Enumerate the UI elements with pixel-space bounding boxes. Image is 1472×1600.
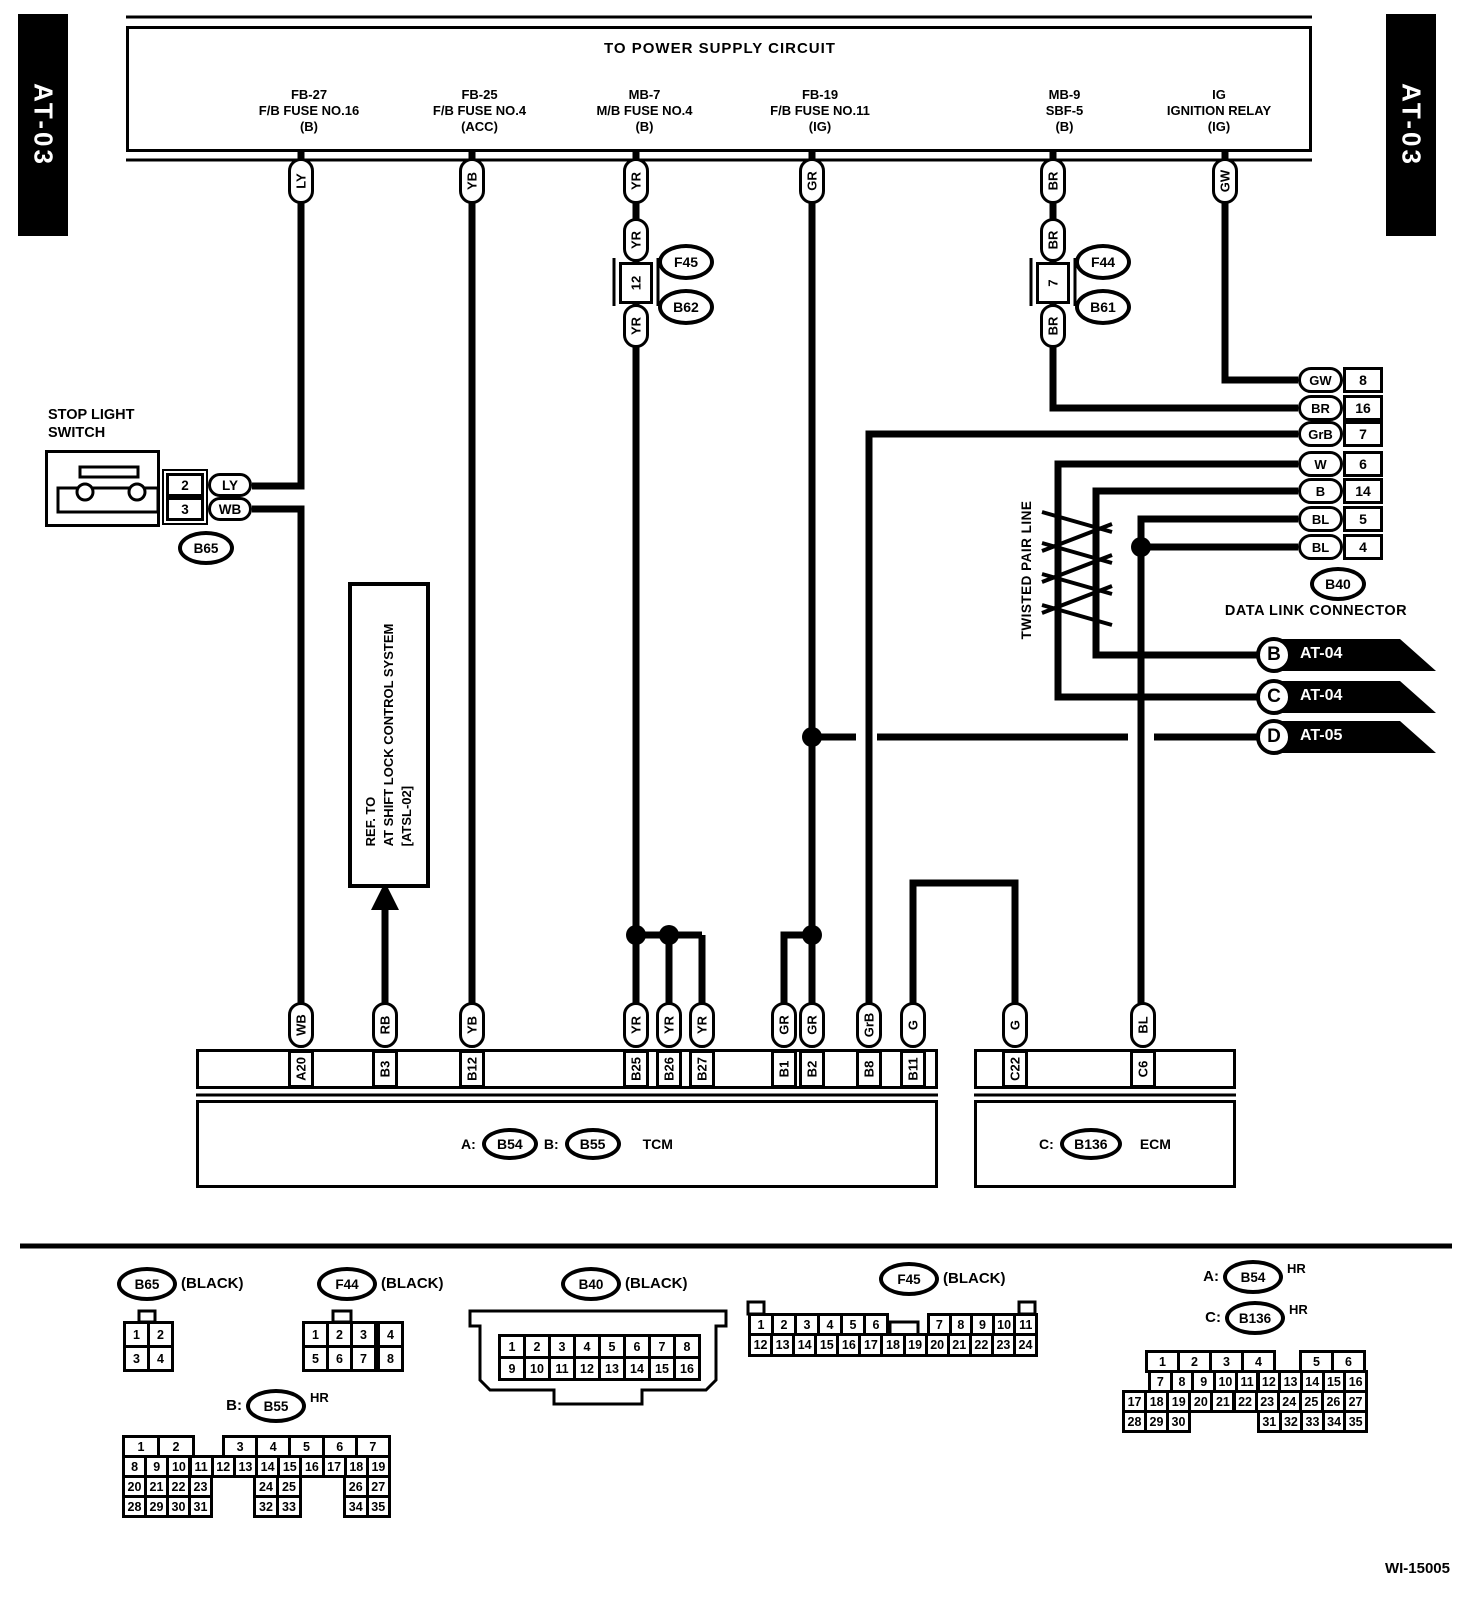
tcm-wire-color-b12: YB	[459, 1002, 485, 1048]
ecm-c-prefix: C:	[1039, 1136, 1054, 1152]
fuse-cell-line3: (B)	[300, 119, 318, 135]
pinout-grid-b65-pin-1: 1	[123, 1321, 150, 1348]
shift-lock-ref-box: REF. TO AT SHIFT LOCK CONTROL SYSTEM [AT…	[348, 582, 430, 888]
tcm-connector-a: B54	[482, 1128, 538, 1160]
tcm-pin-c22: C22	[1002, 1050, 1028, 1088]
ecm-body: C: B136 ECM	[974, 1100, 1236, 1188]
dlc-caption: DATA LINK CONNECTOR	[1204, 603, 1428, 619]
inline-connector-pin-box-label: 7	[1046, 279, 1061, 286]
fuse-cell-fb-27: FB-27F/B FUSE NO.16(B)	[220, 76, 398, 146]
twisted-pair-icon	[1042, 512, 1112, 625]
fuse-cell-line3: (IG)	[1208, 119, 1230, 135]
pinout-tag-b65: (BLACK)	[181, 1275, 251, 1293]
pinout-grid-b40-pin-9: 9	[498, 1356, 526, 1381]
inline-wire-label: BR	[1040, 218, 1066, 262]
wire-color-label-top-gw-label: GW	[1218, 170, 1233, 192]
dlc-wire-color-br: BR	[1298, 395, 1343, 421]
tcm-wire-color-c6-label: BL	[1136, 1016, 1151, 1033]
pinout-grid-b55-pin-35: 35	[366, 1495, 392, 1518]
wiring-diagram-page: AT-03 AT-03 TO POWER SUPPLY CIRCUIT STOP…	[0, 0, 1472, 1600]
inline-connector-pin-box: 12	[619, 262, 653, 304]
figure-number: WI-15005	[1330, 1560, 1450, 1577]
pinout-grid-b40-pin-14: 14	[623, 1356, 651, 1381]
fuse-cell-ig: IGIGNITION RELAY(IG)	[1135, 76, 1303, 146]
pinout-grid-b40-pin-12: 12	[573, 1356, 601, 1381]
pinout-grid-f44-pin-6: 6	[326, 1345, 353, 1372]
tcm-pin-b8-label: B8	[862, 1061, 877, 1078]
tcm-pin-a20: A20	[288, 1050, 314, 1088]
wire-color-label-top-br-label: BR	[1046, 172, 1061, 191]
flag-letter-b: B	[1256, 637, 1292, 673]
tcm-wire-color-b27: YR	[689, 1002, 715, 1048]
pinout-grid-b40-pin-15: 15	[648, 1356, 676, 1381]
tcm-wire-color-b3-label: RB	[378, 1016, 393, 1035]
dlc-pin-number: 14	[1343, 478, 1383, 504]
tcm-connector-b: B55	[565, 1128, 621, 1160]
pinout-prefix-b55: B:	[214, 1397, 242, 1415]
tcm-pin-b27-label: B27	[695, 1057, 710, 1081]
fuse-cell-fb-19: FB-19F/B FUSE NO.11(IG)	[728, 76, 912, 146]
fuse-cell-fb-25: FB-25F/B FUSE NO.4(ACC)	[398, 76, 561, 146]
pinout-grid-b40-pin-10: 10	[523, 1356, 551, 1381]
flag-label-b: AT-04	[1300, 645, 1380, 665]
pinout-prefix-b54: A:	[1191, 1268, 1219, 1286]
tcm-wire-color-a20-label: WB	[294, 1014, 309, 1036]
wire-color-label-top-gr: GR	[799, 158, 825, 204]
tcm-body: A: B54 B: B55 TCM	[196, 1100, 938, 1188]
flag-letter-c: C	[1256, 679, 1292, 715]
tcm-wire-color-b25: YR	[623, 1002, 649, 1048]
dlc-wire-color-bl: BL	[1298, 506, 1343, 532]
flag-letter-d: D	[1256, 719, 1292, 755]
pinout-connector-b40: B40	[561, 1267, 621, 1301]
twisted-pair-label-wrap: TWISTED PAIR LINE	[1012, 480, 1042, 660]
pinout-connector-b55: B55	[246, 1389, 306, 1423]
tcm-wire-color-b26: YR	[656, 1002, 682, 1048]
tcm-wire-color-b27-label: YR	[695, 1016, 710, 1034]
dlc-pin-number: 5	[1343, 506, 1383, 532]
wire-color-label-top-gr-label: GR	[805, 171, 820, 191]
ecm-label-row: C: B136 ECM	[977, 1103, 1233, 1185]
tcm-wire-color-b11-label: G	[906, 1020, 921, 1030]
tcm-pin-c22-label: C22	[1008, 1057, 1023, 1081]
dlc-wire-color-w: W	[1298, 451, 1343, 477]
tcm-wire-color-b8-label: GrB	[862, 1013, 877, 1038]
power-supply-title: TO POWER SUPPLY CIRCUIT	[128, 40, 1312, 57]
dlc-wire-color-bl: BL	[1298, 534, 1343, 560]
inline-wire-label-label: YR	[629, 231, 644, 249]
fuse-cell-line2: SBF-5	[1046, 103, 1084, 119]
pinout-grid-b54-pin-35: 35	[1343, 1410, 1368, 1433]
pinout-connector-b54: B54	[1223, 1260, 1283, 1294]
flag-label-c: AT-04	[1300, 687, 1380, 707]
fuse-cell-line2: F/B FUSE NO.4	[433, 103, 526, 119]
inline-wire-label-label: BR	[1046, 231, 1061, 250]
tcm-pin-b2: B2	[799, 1050, 825, 1088]
tcm-wire-color-b26-label: YR	[662, 1016, 677, 1034]
pinout-connector-b136: B136	[1225, 1301, 1285, 1335]
wire-color-label-top-ly-label: LY	[294, 173, 309, 188]
pinout-grid-b55-pin-33: 33	[276, 1495, 302, 1518]
tcm-a-prefix: A:	[461, 1136, 476, 1152]
wire-color-label-top-yb-label: YB	[465, 172, 480, 190]
pinout-connector-b65: B65	[117, 1267, 177, 1301]
shift-lock-ref-line3: [ATSL-02]	[398, 624, 416, 847]
sls-pin-number: 3	[166, 497, 204, 521]
pinout-grid-b55-pin-31: 31	[188, 1495, 213, 1518]
tcm-pin-b1: B1	[771, 1050, 797, 1088]
tcm-pin-b26: B26	[656, 1050, 682, 1088]
tcm-wire-color-b11: G	[900, 1002, 926, 1048]
connector-ref-f44: F44	[1075, 244, 1131, 280]
dlc-pin-number: 6	[1343, 451, 1383, 477]
shift-lock-ref-text: REF. TO AT SHIFT LOCK CONTROL SYSTEM [AT…	[362, 624, 416, 847]
connector-ref-b62: B62	[658, 289, 714, 325]
dlc-pin-number: 8	[1343, 367, 1383, 393]
tcm-wire-color-c22-label: G	[1008, 1020, 1023, 1030]
stop-light-switch-title: STOP LIGHT SWITCH	[48, 406, 134, 442]
pinout-tag-f44: (BLACK)	[381, 1275, 451, 1293]
tcm-wire-color-b2-label: GR	[805, 1015, 820, 1035]
tcm-pin-b12-label: B12	[465, 1057, 480, 1081]
tcm-pin-c6-label: C6	[1136, 1061, 1151, 1078]
tcm-b-prefix: B:	[544, 1136, 559, 1152]
wire-color-label-top-yb: YB	[459, 158, 485, 204]
tcm-wire-color-b1-label: GR	[777, 1015, 792, 1035]
wire-color-label-top-yr: YR	[623, 158, 649, 204]
fuse-cell-line1: FB-19	[802, 87, 838, 103]
pinout-grid-f44-pin-5: 5	[302, 1345, 329, 1372]
inline-wire-label: YR	[623, 218, 649, 262]
tcm-pin-b2-label: B2	[805, 1061, 820, 1078]
ecm-label: ECM	[1140, 1136, 1171, 1152]
connector-ref-b61: B61	[1075, 289, 1131, 325]
pinout-grid-b54-pin-30: 30	[1166, 1410, 1191, 1433]
tcm-pin-b25: B25	[623, 1050, 649, 1088]
stop-light-switch-box	[45, 450, 160, 527]
pinout-grid-b65-pin-2: 2	[147, 1321, 174, 1348]
tcm-wire-color-c22: G	[1002, 1002, 1028, 1048]
pinout-tag-b54: HR	[1287, 1261, 1357, 1279]
sls-pin-color: WB	[208, 497, 252, 521]
fuse-cell-line1: FB-25	[461, 87, 497, 103]
fuse-cell-line1: IG	[1212, 87, 1226, 103]
sls-pin-number: 2	[166, 473, 204, 497]
inline-wire-label: YR	[623, 304, 649, 348]
fuse-cell-line2: F/B FUSE NO.11	[770, 103, 870, 119]
page-tab-left: AT-03	[18, 14, 68, 236]
tcm-pin-c6: C6	[1130, 1050, 1156, 1088]
pinout-prefix-b136: C:	[1193, 1309, 1221, 1327]
pinout-tag-b55: HR	[310, 1390, 380, 1408]
fuse-cell-line1: MB-9	[1049, 87, 1081, 103]
tcm-pin-b3-label: B3	[378, 1061, 393, 1078]
tcm-pin-b8: B8	[856, 1050, 882, 1088]
tcm-pin-b27: B27	[689, 1050, 715, 1088]
stop-light-switch-title-line2: SWITCH	[48, 424, 134, 442]
tcm-wire-color-a20: WB	[288, 1002, 314, 1048]
dlc-pin-number: 4	[1343, 534, 1383, 560]
fuse-cell-mb-9: MB-9SBF-5(B)	[994, 76, 1135, 146]
dlc-pin-number: 16	[1343, 395, 1383, 421]
wire-color-label-top-ly: LY	[288, 158, 314, 204]
wire-color-label-top-gw: GW	[1212, 158, 1238, 204]
page-tab-right: AT-03	[1386, 14, 1436, 236]
tcm-wire-color-b1: GR	[771, 1002, 797, 1048]
fuse-cell-line2: IGNITION RELAY	[1167, 103, 1271, 119]
page-tab-left-label: AT-03	[28, 83, 59, 167]
pinout-tag-f45: (BLACK)	[943, 1270, 1013, 1288]
inline-wire-label-label: YR	[629, 317, 644, 335]
pinout-grid-b40-pin-16: 16	[673, 1356, 701, 1381]
connector-ref-b40: B40	[1310, 567, 1366, 601]
fuse-cell-line2: F/B FUSE NO.16	[259, 103, 359, 119]
tcm-label: TCM	[643, 1136, 673, 1152]
dlc-wire-color-b: B	[1298, 478, 1343, 504]
pinout-grid-f44-pin-3: 3	[350, 1321, 377, 1348]
pinout-grid-f44-pin-1: 1	[302, 1321, 329, 1348]
dlc-wire-color-gw: GW	[1298, 367, 1343, 393]
tcm-wire-color-b25-label: YR	[629, 1016, 644, 1034]
inline-connector-pin-box-label: 12	[629, 276, 644, 290]
pinout-grid-b40-pin-11: 11	[548, 1356, 576, 1381]
inline-connector-pin-box: 7	[1036, 262, 1070, 304]
tcm-wire-color-b3: RB	[372, 1002, 398, 1048]
inline-wire-label-label: BR	[1046, 317, 1061, 336]
tcm-pin-b11: B11	[900, 1050, 926, 1088]
wire-color-label-top-br: BR	[1040, 158, 1066, 204]
tcm-pin-b25-label: B25	[629, 1057, 644, 1081]
pinout-tag-b40: (BLACK)	[625, 1275, 695, 1293]
sls-pin-color: LY	[208, 473, 252, 497]
shift-lock-ref-line1: REF. TO	[362, 624, 380, 847]
fuse-cell-mb-7: MB-7M/B FUSE NO.4(B)	[561, 76, 728, 146]
pinout-grid-f44-pin-2: 2	[326, 1321, 353, 1348]
dlc-pin-number: 7	[1343, 421, 1383, 447]
pinout-grid-f44-pin-4: 4	[377, 1321, 404, 1348]
pinout-grid-b65-pin-4: 4	[147, 1345, 174, 1372]
pinout-connector-f45: F45	[879, 1262, 939, 1296]
fuse-cell-line3: (IG)	[809, 119, 831, 135]
connector-ref-f45: F45	[658, 244, 714, 280]
tcm-label-row: A: B54 B: B55 TCM	[199, 1103, 935, 1185]
tcm-wire-color-b12-label: YB	[465, 1016, 480, 1034]
pinout-tag-b136: HR	[1289, 1302, 1359, 1320]
junction-dots	[626, 537, 1151, 945]
pinout-grid-f45-pin-24: 24	[1013, 1333, 1038, 1357]
tcm-pin-b12: B12	[459, 1050, 485, 1088]
fuse-cell-line1: MB-7	[629, 87, 661, 103]
pinout-grid-b65-pin-3: 3	[123, 1345, 150, 1372]
pinout-grid-b40-pin-13: 13	[598, 1356, 626, 1381]
pinout-connector-f44: F44	[317, 1267, 377, 1301]
wire-color-label-top-yr-label: YR	[629, 172, 644, 190]
tcm-wire-color-b2: GR	[799, 1002, 825, 1048]
page-tab-right-label: AT-03	[1396, 83, 1427, 167]
fuse-cell-line2: M/B FUSE NO.4	[596, 103, 692, 119]
stop-light-switch-title-line1: STOP LIGHT	[48, 406, 134, 424]
tcm-wire-color-c6: BL	[1130, 1002, 1156, 1048]
tcm-wire-color-b8: GrB	[856, 1002, 882, 1048]
fuse-cell-line1: FB-27	[291, 87, 327, 103]
tcm-pin-b3: B3	[372, 1050, 398, 1088]
fuse-cell-line3: (ACC)	[461, 119, 498, 135]
ecm-connector-c: B136	[1060, 1128, 1122, 1160]
inline-wire-label: BR	[1040, 304, 1066, 348]
fuse-cell-line3: (B)	[635, 119, 653, 135]
flag-label-d: AT-05	[1300, 727, 1380, 747]
pinout-grid-f44-pin-8: 8	[377, 1345, 404, 1372]
twisted-pair-label: TWISTED PAIR LINE	[1018, 501, 1036, 640]
shift-lock-ref-line2: AT SHIFT LOCK CONTROL SYSTEM	[380, 624, 398, 847]
connector-ref-b65: B65	[178, 531, 234, 565]
tcm-pin-b11-label: B11	[906, 1057, 921, 1080]
dlc-wire-color-grb: GrB	[1298, 421, 1343, 447]
pinout-grid-f44-pin-7: 7	[350, 1345, 377, 1372]
tcm-pin-a20-label: A20	[294, 1057, 309, 1081]
fuse-cell-line3: (B)	[1055, 119, 1073, 135]
tcm-pin-b1-label: B1	[777, 1061, 792, 1078]
tcm-pin-b26-label: B26	[662, 1057, 677, 1081]
